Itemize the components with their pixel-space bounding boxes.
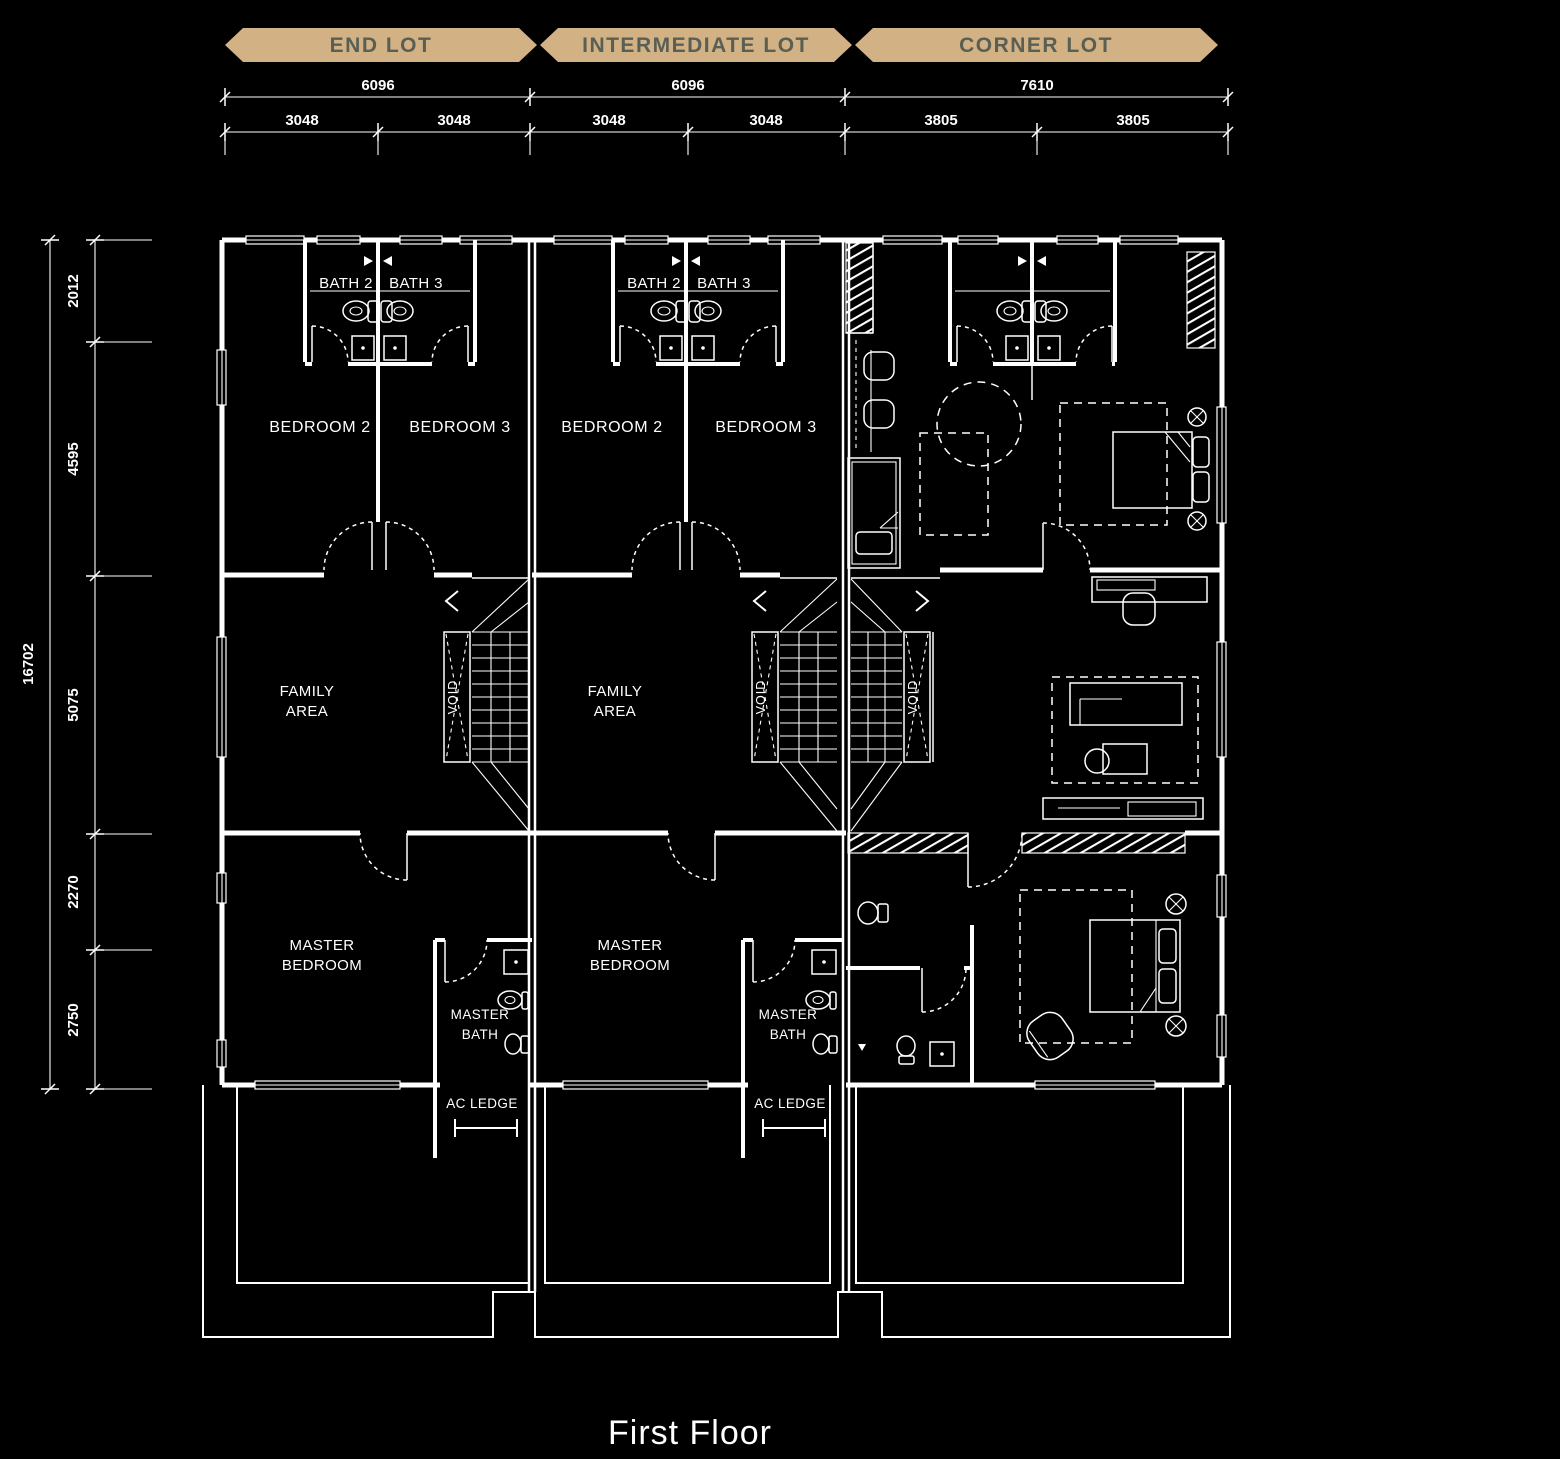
room-label-bath3: BATH 3 — [697, 275, 751, 292]
armchair-icon — [1021, 1007, 1079, 1066]
door-swing-arc — [312, 326, 348, 362]
side-table-icon — [1166, 894, 1186, 1036]
banner-intermediate-lot-label: INTERMEDIATE LOT — [582, 34, 810, 57]
banner-corner-lot-label: CORNER LOT — [959, 34, 1113, 57]
room-label-family: AREA — [594, 703, 636, 720]
stair-direction-arrow-icon — [446, 591, 458, 611]
door-marker-icon — [1037, 256, 1046, 266]
dim-left-seg: 5075 — [65, 688, 82, 721]
master-bedroom-door — [668, 833, 715, 880]
furniture-outline — [920, 433, 988, 535]
toilet-icon — [897, 1036, 915, 1064]
void-label: VOID — [906, 680, 920, 715]
banner-end-lot: END LOT — [225, 28, 537, 62]
dim-total-end: 6096 — [361, 77, 394, 94]
stool-icon — [1085, 749, 1109, 773]
wardrobe-icon — [1187, 252, 1215, 348]
dim-half: 3048 — [592, 112, 625, 129]
dim-total-corner: 7610 — [1020, 77, 1053, 94]
dim-half: 3805 — [1116, 112, 1149, 129]
corner-table-group — [1052, 677, 1198, 783]
room-label-master-bath: MASTER — [759, 1007, 818, 1022]
dim-half: 3805 — [924, 112, 957, 129]
int-staircase: VOID — [752, 578, 837, 831]
door-marker-icon — [672, 256, 681, 266]
room-label-family: FAMILY — [280, 683, 335, 700]
unit-end-lot: BATH 2 BATH 3 BEDROOM 2 BEDROOM 3 FAMILY… — [269, 240, 532, 1158]
corner-study-desk — [1092, 577, 1207, 625]
dim-left-seg: 2750 — [65, 1003, 82, 1036]
room-label-family: AREA — [286, 703, 328, 720]
floor-plan-page: END LOT INTERMEDIATE LOT CORNER LOT — [0, 0, 1560, 1459]
banner-intermediate-lot: INTERMEDIATE LOT — [540, 28, 852, 62]
room-label-bath2: BATH 2 — [319, 275, 373, 292]
floor-plan-drawing: END LOT INTERMEDIATE LOT CORNER LOT — [0, 0, 1560, 1459]
tv-console-icon — [1043, 798, 1203, 819]
end-master-bath: MASTER BATH — [435, 940, 532, 1085]
door-marker-icon — [1018, 256, 1027, 266]
door-swing-arc — [957, 326, 993, 362]
room-label-master: MASTER — [290, 937, 355, 954]
corner-master-door — [968, 833, 1022, 887]
dim-half: 3048 — [285, 112, 318, 129]
exterior-walls — [217, 236, 1226, 1292]
corner-master-bedroom — [1020, 890, 1186, 1065]
stair-direction-arrow-icon — [916, 591, 928, 611]
end-bathrooms: BATH 2 BATH 3 — [305, 240, 475, 522]
door-marker-icon — [364, 256, 373, 266]
door-swing-arc — [740, 326, 776, 362]
void-label: VOID — [446, 680, 460, 715]
stair-direction-arrow-icon — [754, 591, 766, 611]
corner-louver-windows — [848, 833, 1185, 853]
double-bed-icon — [1113, 432, 1209, 508]
toilet-icon — [813, 1034, 837, 1054]
table-icon — [1070, 683, 1182, 725]
corner-bedroom — [1043, 252, 1215, 570]
dim-left-seg: 2012 — [65, 274, 82, 307]
side-table-icon — [1188, 408, 1206, 530]
room-label-bedroom2: BEDROOM 2 — [561, 419, 662, 436]
toilet-icon — [505, 1034, 529, 1054]
door-marker-icon — [383, 256, 392, 266]
door-swing-arc — [432, 326, 468, 362]
room-label-master-bath: MASTER — [451, 1007, 510, 1022]
ac-ledge-label: AC LEDGE — [754, 1096, 825, 1111]
room-label-bath3: BATH 3 — [389, 275, 443, 292]
unit-corner-lot: VOID — [846, 240, 1215, 1085]
end-ac-ledge: AC LEDGE — [435, 1085, 518, 1158]
void-label: VOID — [754, 680, 768, 715]
room-label-master-bath: BATH — [462, 1027, 499, 1042]
chair-icon — [864, 400, 894, 428]
rug-outline — [1052, 677, 1198, 783]
end-staircase: VOID — [444, 578, 529, 831]
chair-icon — [864, 352, 894, 380]
corner-bathrooms — [950, 240, 1115, 400]
toilet-icon — [858, 902, 888, 924]
room-label-bedroom3: BEDROOM 3 — [715, 419, 816, 436]
drawing-title: First Floor — [608, 1414, 772, 1452]
room-label-master: MASTER — [598, 937, 663, 954]
dim-half: 3048 — [437, 112, 470, 129]
dim-total-intermediate: 6096 — [671, 77, 704, 94]
room-label-master: BEDROOM — [282, 957, 362, 974]
table-icon — [1103, 744, 1147, 774]
room-label-bath2: BATH 2 — [627, 275, 681, 292]
room-label-master: BEDROOM — [590, 957, 670, 974]
round-table-outline — [937, 382, 1021, 466]
corner-staircase: VOID — [851, 578, 940, 831]
int-ac-ledge: AC LEDGE — [743, 1085, 826, 1158]
lot-banners: END LOT INTERMEDIATE LOT CORNER LOT — [225, 28, 1218, 62]
floor-drain-icon — [858, 1044, 866, 1051]
lower-outline — [203, 1085, 1230, 1337]
bedroom-double-doors — [632, 522, 740, 570]
unit-intermediate-lot: BATH 2 BATH 3 BEDROOM 2 BEDROOM 3 FAMILY… — [561, 240, 843, 1158]
int-bathrooms: BATH 2 BATH 3 — [613, 240, 783, 522]
chair-icon — [1123, 593, 1155, 625]
door-swing-arc — [1043, 523, 1090, 570]
single-bed-icon — [848, 458, 900, 568]
door-swing-arc — [1076, 326, 1112, 362]
dim-left-seg: 4595 — [65, 442, 82, 475]
room-label-master-bath: BATH — [770, 1027, 807, 1042]
int-master-bath: MASTER BATH — [743, 940, 843, 1085]
door-swing-arc — [753, 940, 795, 982]
door-marker-icon — [691, 256, 700, 266]
banner-corner-lot: CORNER LOT — [855, 28, 1218, 62]
room-label-bedroom3: BEDROOM 3 — [409, 419, 510, 436]
door-swing-arc — [922, 968, 966, 1012]
ac-ledge-label: AC LEDGE — [446, 1096, 517, 1111]
dimension-chain-top: 6096 6096 7610 3048 3048 3048 3048 3805 … — [220, 77, 1233, 155]
dim-left-total: 16702 — [20, 643, 37, 685]
double-bed-icon — [1090, 920, 1180, 1012]
room-label-bedroom2: BEDROOM 2 — [269, 419, 370, 436]
dim-left-seg: 2270 — [65, 875, 82, 908]
room-label-family: FAMILY — [588, 683, 643, 700]
door-swing-arc — [445, 940, 487, 982]
bedroom-double-doors — [324, 522, 434, 570]
dimension-chain-left: 16702 2012 4595 5075 2270 2750 — [20, 235, 152, 1094]
door-swing-arc — [620, 326, 656, 362]
banner-end-lot-label: END LOT — [330, 34, 433, 57]
rug-outline — [1020, 890, 1132, 1043]
corner-master-bath — [846, 902, 972, 1085]
master-bedroom-door — [360, 833, 407, 880]
dim-half: 3048 — [749, 112, 782, 129]
